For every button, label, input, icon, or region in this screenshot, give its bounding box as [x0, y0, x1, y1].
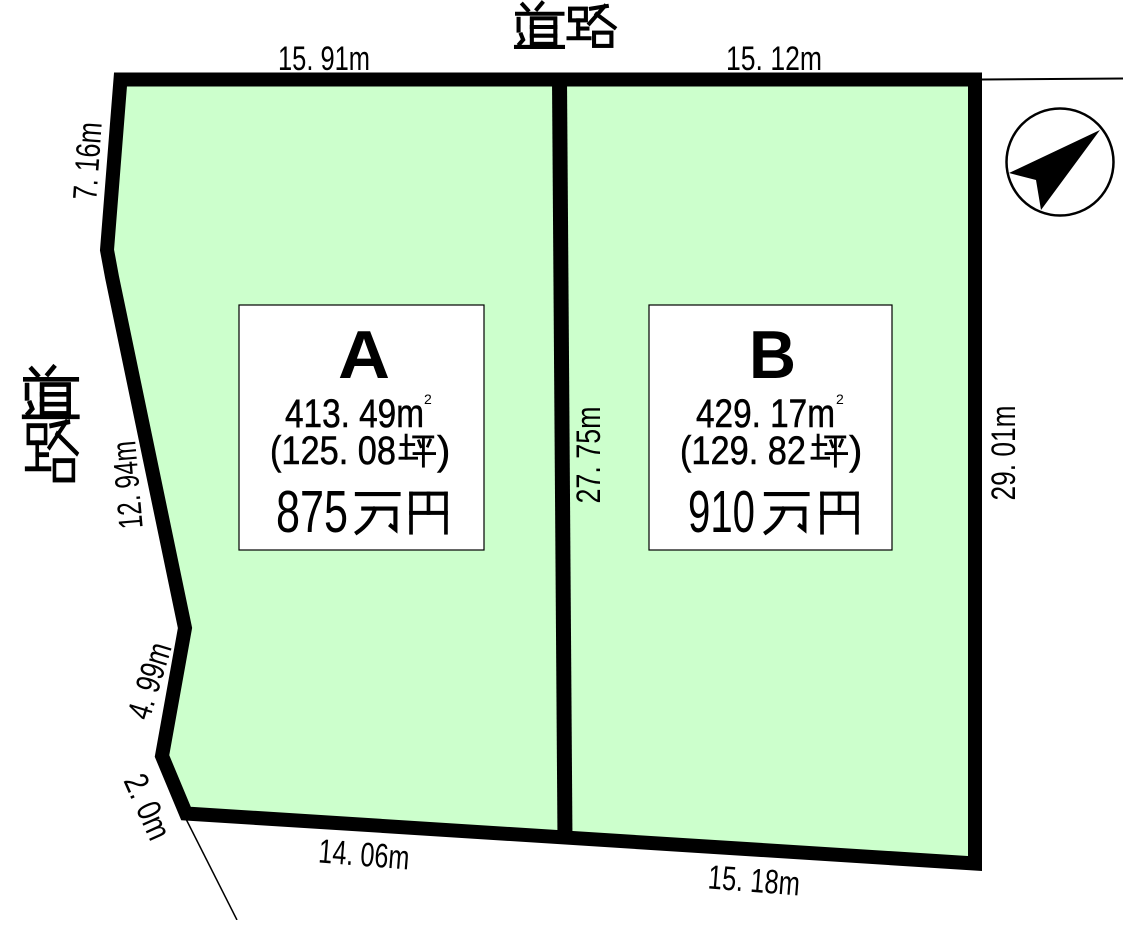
svg-text:7. 16m: 7. 16m: [66, 121, 109, 201]
svg-text:910: 910: [688, 479, 755, 545]
svg-text:): ): [437, 429, 450, 473]
svg-text:B: B: [749, 317, 796, 393]
svg-text:(125. 08: (125. 08: [270, 429, 396, 473]
svg-text:2: 2: [836, 391, 844, 407]
svg-text:15. 12m: 15. 12m: [726, 40, 822, 78]
svg-text:2: 2: [424, 391, 432, 407]
svg-text:875: 875: [276, 479, 348, 545]
svg-text:12. 94m: 12. 94m: [105, 440, 151, 531]
svg-text:14. 06m: 14. 06m: [317, 832, 411, 877]
svg-text:): ): [849, 429, 862, 473]
svg-text:29. 01m: 29. 01m: [985, 406, 1023, 501]
svg-text:15. 18m: 15. 18m: [707, 858, 802, 903]
svg-text:15. 91m: 15. 91m: [278, 40, 370, 78]
svg-text:27. 75m: 27. 75m: [570, 407, 608, 504]
svg-text:A: A: [338, 317, 390, 393]
svg-text:(129. 82: (129. 82: [680, 429, 806, 473]
